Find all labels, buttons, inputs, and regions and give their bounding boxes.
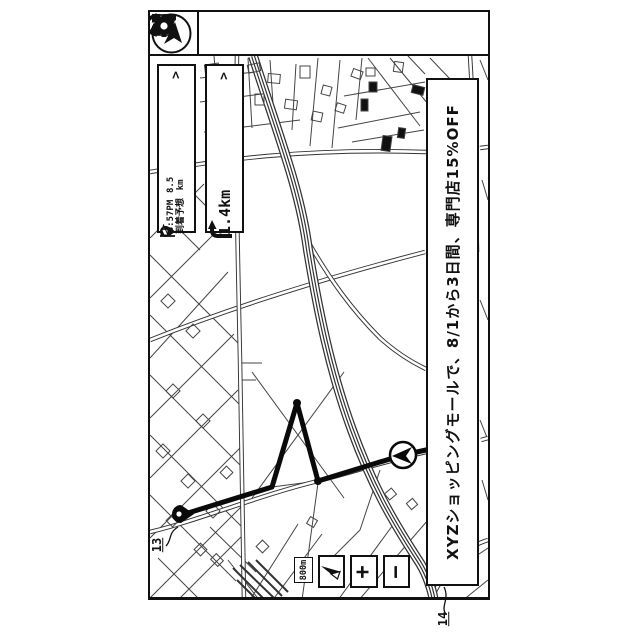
- compass-needle-icon: [320, 557, 343, 580]
- goal-flag-icon: [160, 224, 175, 238]
- ad-banner-text: XYZショッピングモールで、8/1から3日間、専門店15%OFF: [442, 104, 463, 560]
- zoom-out-button[interactable]: −: [383, 555, 410, 588]
- next-turn-panel[interactable]: 1.4km >: [205, 64, 244, 233]
- reference-numeral-14: 14: [436, 612, 450, 626]
- zoom-out-label: −: [386, 565, 408, 578]
- arrival-info-panel[interactable]: 3:57PM 到着予想 8.5 km >: [157, 64, 196, 233]
- zoom-in-button[interactable]: +: [350, 555, 378, 588]
- patent-figure-nav-screen: 3:57PM 到着予想 8.5 km > 1.4km >: [0, 0, 640, 640]
- reference-numeral-13: 13: [150, 538, 164, 552]
- map-scale-label: 800m: [299, 560, 309, 580]
- remaining-distance-block: 8.5 km: [167, 177, 187, 193]
- turn-right-arrow-icon: [208, 220, 232, 240]
- expand-chevron[interactable]: >: [217, 72, 232, 80]
- arrival-label: 到着予想: [177, 198, 187, 234]
- toolbar-menu: [199, 12, 488, 54]
- settings-gear-icon[interactable]: [150, 12, 178, 40]
- expand-chevron[interactable]: >: [169, 71, 184, 79]
- remaining-distance-unit: km: [177, 177, 187, 193]
- map-scale-indicator: 800m: [294, 557, 313, 583]
- ad-banner[interactable]: XYZショッピングモールで、8/1から3日間、専門店15%OFF: [426, 78, 479, 586]
- zoom-in-label: +: [353, 565, 375, 578]
- compass-button[interactable]: [318, 555, 345, 588]
- toolbar: [148, 10, 490, 56]
